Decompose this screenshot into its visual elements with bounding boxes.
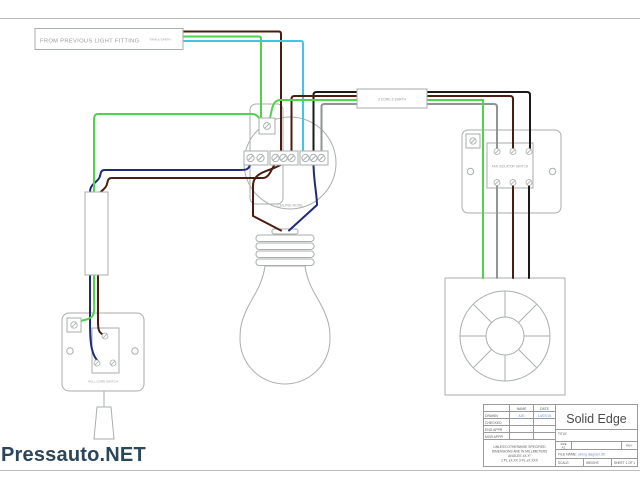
terminal-screw-icon bbox=[510, 180, 516, 186]
title-label: TITLE bbox=[558, 432, 567, 436]
switch-label: PULL CORD SWITCH bbox=[88, 380, 118, 384]
terminal-screw-icon bbox=[247, 154, 254, 161]
row-checked: CHECKED bbox=[485, 421, 502, 425]
light-bulb bbox=[240, 229, 330, 384]
drawn-date: 14/07/10 bbox=[538, 414, 551, 418]
bulb-cap-top bbox=[272, 229, 298, 234]
wire-supply-neutral bbox=[183, 41, 303, 151]
row-drawn: DRAWN bbox=[485, 414, 498, 418]
note-1: UNLESS OTHERWISE SPECIFIED bbox=[493, 445, 546, 449]
extractor-fan bbox=[445, 278, 565, 395]
terminal-screw-icon bbox=[526, 180, 532, 186]
bulb-glass bbox=[240, 266, 330, 384]
terminal-screw-icon bbox=[257, 154, 264, 161]
terminal-screw-icon bbox=[71, 322, 77, 328]
title-block: NAME DATE DRAWN AJE 14/07/10 CHECKED ENG… bbox=[484, 405, 638, 467]
terminal-screw-icon bbox=[272, 154, 279, 161]
terminal-screw-icon bbox=[318, 154, 325, 161]
terminal-screw-icon bbox=[102, 333, 108, 339]
terminal-screw-icon bbox=[280, 154, 287, 161]
terminal-screw-icon bbox=[494, 180, 500, 186]
terminal-screw-icon bbox=[494, 149, 500, 155]
col-name: NAME bbox=[517, 407, 528, 411]
terminal-screw-icon bbox=[526, 149, 532, 155]
switch-cable-label-box bbox=[85, 192, 108, 275]
sheet-label: SHEET 1 OF 1 bbox=[614, 461, 635, 465]
ceiling-rose-label: CEILING ROSE bbox=[277, 204, 303, 208]
fan-cable-text: 3 CORE & EARTH bbox=[378, 98, 407, 102]
terminal-screw-icon bbox=[110, 360, 116, 366]
terminal-screw-icon bbox=[470, 138, 476, 144]
source-label-text: FROM PREVIOUS LIGHT FITTING bbox=[40, 39, 140, 45]
bulb-cap-ridge bbox=[256, 243, 314, 250]
row-mgr-appr: MGR APPR bbox=[485, 435, 503, 439]
drawn-name: AJE bbox=[518, 414, 525, 418]
scale-label: SCALE: bbox=[558, 461, 569, 465]
terminal-screw-icon bbox=[94, 360, 100, 366]
isolator-label: FAN ISOLATOR SWITCH bbox=[492, 165, 529, 169]
wire-bulb-neutral bbox=[289, 163, 317, 231]
note-2: DIMENSIONS ARE IN MILLIMETERS bbox=[492, 450, 548, 454]
terminal-screw-icon bbox=[302, 154, 309, 161]
watermark-text: Pressauto.NET bbox=[1, 444, 146, 466]
terminal-screw-icon bbox=[288, 154, 295, 161]
note-3: ANGLES ±X.X° bbox=[508, 454, 531, 458]
note-4: 2 PL ±X.XX 3 PL ±X.XXX bbox=[501, 459, 539, 463]
weight-label: WEIGHT: bbox=[586, 461, 599, 465]
file-name: wiring diagram.dft bbox=[578, 453, 605, 457]
pull-cord-handle bbox=[94, 407, 114, 439]
row-eng-appr: ENG APPR bbox=[485, 428, 503, 432]
file-label: FILE NAME: bbox=[558, 453, 577, 457]
source-cable-text: TWIN & EARTH bbox=[149, 38, 170, 42]
wiring-diagram-page: CEILING ROSE PULL CORD SWITCH bbox=[0, 0, 640, 480]
terminal-screw-icon bbox=[310, 154, 317, 161]
bulb-cap-ridge bbox=[256, 251, 314, 258]
wire-supply-earth bbox=[183, 37, 265, 126]
bulb-cap-ridge bbox=[256, 259, 314, 266]
wire-bulb-live bbox=[253, 163, 284, 231]
rev-label: REV bbox=[626, 444, 632, 448]
wiring-diagram-canvas: CEILING ROSE PULL CORD SWITCH bbox=[0, 0, 640, 480]
terminal-screw-icon bbox=[264, 123, 271, 130]
col-date: DATE bbox=[540, 407, 550, 411]
bulb-cap-ridge bbox=[256, 235, 314, 242]
brand-logo-text: Solid Edge bbox=[566, 412, 627, 426]
terminal-screw-icon bbox=[510, 149, 516, 155]
